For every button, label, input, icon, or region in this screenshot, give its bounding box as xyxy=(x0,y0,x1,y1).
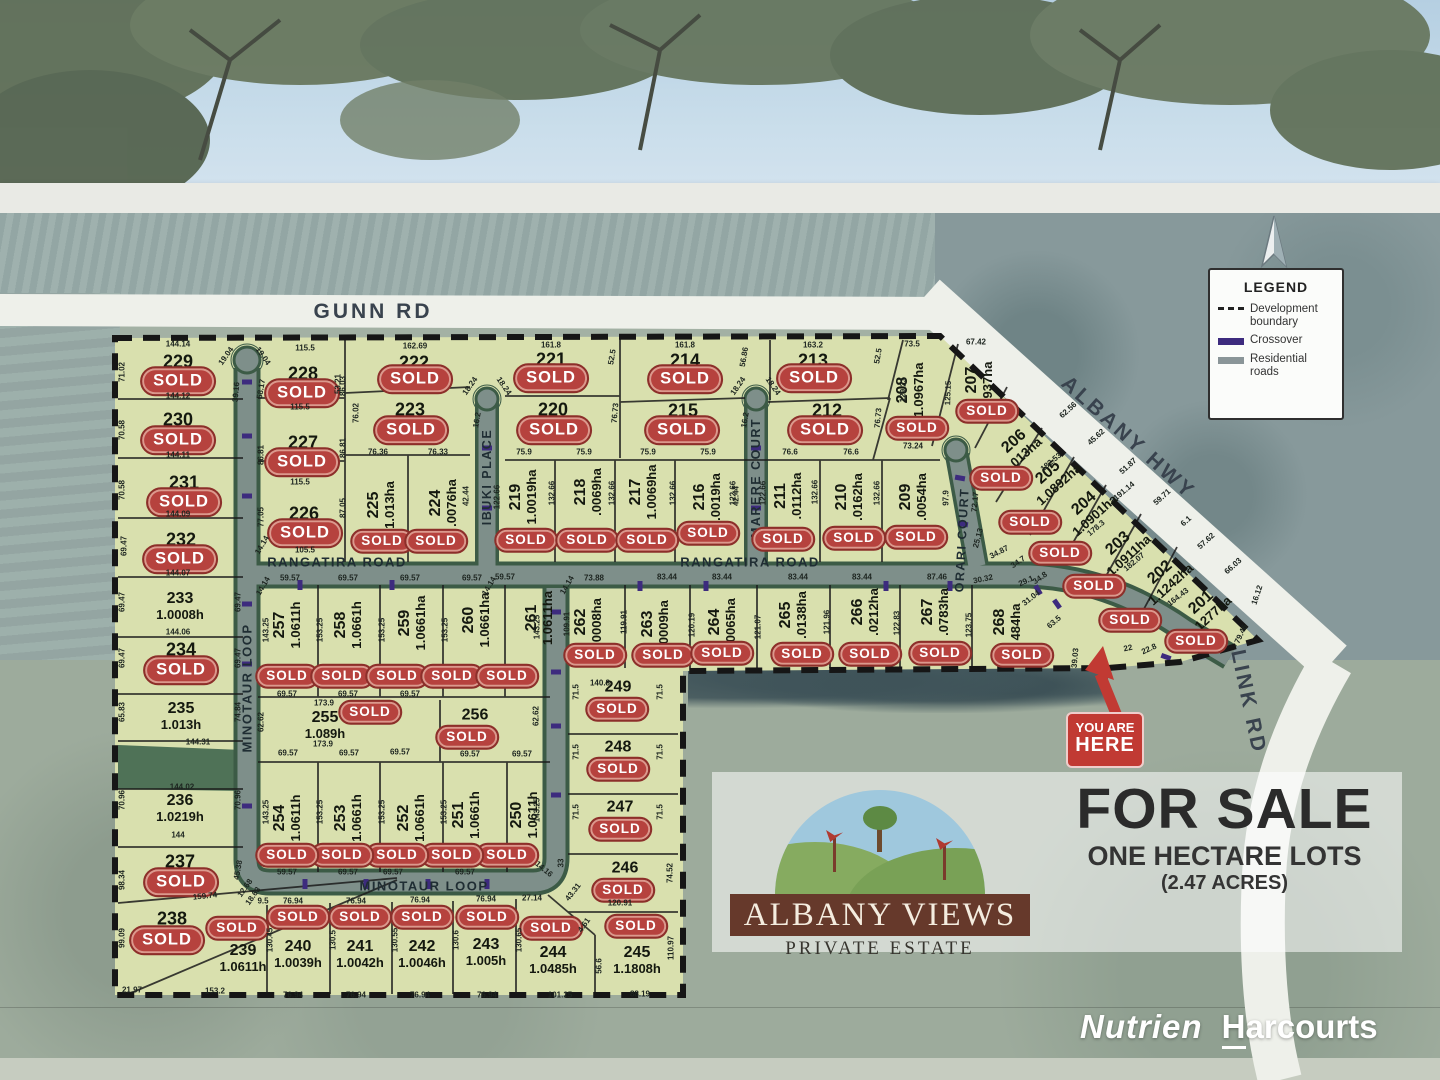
dimension-label: 76.33 xyxy=(428,448,448,457)
dimension-label: 121.96 xyxy=(823,610,832,634)
lot-number: 256 xyxy=(462,708,489,725)
lot-number: 240 xyxy=(274,939,322,956)
lot-label: 2431.005h xyxy=(466,937,506,967)
dimension-label: 77.05 xyxy=(257,507,266,527)
dimension-label: 115.5 xyxy=(290,478,310,487)
road-label-rangatira-west: RANGATIRA ROAD xyxy=(267,555,406,570)
dimension-label: 83.44 xyxy=(788,573,808,582)
sold-badge: SOLD xyxy=(955,399,1019,424)
dimension-label: 71.5 xyxy=(572,804,581,820)
lot-label: 2591.0661ha xyxy=(397,596,427,651)
lot-number: 251 xyxy=(451,791,468,839)
lot-area: 1.005h xyxy=(466,954,506,968)
legend-item: Crossover xyxy=(1218,334,1334,347)
logo-windmill-icon xyxy=(943,846,946,880)
dimension-label: 69.47 xyxy=(234,592,243,612)
dimension-label: 140.8 xyxy=(590,679,610,688)
dimension-label: 98.34 xyxy=(118,870,127,890)
dimension-label: 153.25 xyxy=(440,800,449,824)
lot-number: 266 xyxy=(850,588,867,636)
lot-label: 216.0019ha xyxy=(692,473,722,521)
dimension-label: 88.19 xyxy=(630,990,650,999)
lot-label: 256 xyxy=(462,708,489,725)
lot-number: 248 xyxy=(605,740,632,757)
lot-number: 236 xyxy=(156,793,204,810)
lot-label: 246 xyxy=(612,861,639,878)
road-label-rangatira-east: RANGATIRA ROAD xyxy=(680,555,819,570)
you-are-here-line2: HERE xyxy=(1068,735,1142,756)
lot-label: 266.0212ha xyxy=(850,588,880,636)
dimension-label: 144.31 xyxy=(186,738,210,747)
sold-badge: SOLD xyxy=(676,521,740,546)
dimension-label: 74.84 xyxy=(234,702,243,722)
lot-area: 1.0039h xyxy=(274,956,322,970)
sold-badge: SOLD xyxy=(420,664,484,689)
lot-label: 2521.0661h xyxy=(396,794,426,842)
dimension-label: 9.5 xyxy=(257,897,268,906)
dimension-label: 76.94 xyxy=(346,991,366,1000)
dimension-label: 65.83 xyxy=(118,702,127,722)
dimension-label: 69.57 xyxy=(512,750,532,759)
legend-item: Development boundary xyxy=(1218,303,1334,329)
dimension-label: 125.15 xyxy=(943,381,953,406)
dimension-label: 153.2 xyxy=(205,987,225,996)
lot-area: .0162ha xyxy=(851,473,865,521)
sold-badge: SOLD xyxy=(513,363,589,393)
sold-badge: SOLD xyxy=(267,518,343,548)
sold-badge: SOLD xyxy=(310,664,374,689)
dimension-label: 144.02 xyxy=(170,783,194,792)
lot-area: 1.0661h xyxy=(350,794,364,842)
dimension-label: 76.94 xyxy=(410,896,430,905)
lot-number: 209 xyxy=(898,473,915,521)
lot-number: 217 xyxy=(628,465,645,520)
dimension-label: 130.45 xyxy=(266,928,275,952)
dimension-label: 115.5 xyxy=(295,344,315,353)
sold-badge: SOLD xyxy=(365,664,429,689)
dimension-label: 59.57 xyxy=(495,573,515,582)
dimension-label: 130.5 xyxy=(329,930,338,950)
sold-badge: SOLD xyxy=(494,528,558,553)
dimension-label: 71.5 xyxy=(656,684,665,700)
lot-label: 2601.0661ha xyxy=(461,593,491,648)
sold-badge: SOLD xyxy=(519,916,583,941)
lot-area: 1.0046h xyxy=(398,956,446,970)
dimension-label: 75.9 xyxy=(576,448,592,457)
lot-number: 259 xyxy=(397,596,414,651)
lot-area: .0065ha xyxy=(724,598,738,646)
sold-badge: SOLD xyxy=(998,510,1062,535)
lot-label: 268484ha xyxy=(992,604,1022,641)
dimension-label: 86.81 xyxy=(339,438,348,458)
sold-badge: SOLD xyxy=(420,843,484,868)
lot-area: 1.0611h xyxy=(289,602,303,649)
dimension-label: 69.47 xyxy=(118,592,127,612)
lot-number: 257 xyxy=(272,602,289,649)
dimension-label: 69.47 xyxy=(120,536,129,556)
dimension-label: 69.57 xyxy=(400,574,420,583)
dimension-label: 130.6 xyxy=(452,930,461,950)
sold-badge: SOLD xyxy=(365,843,429,868)
lot-area: 1.0611h xyxy=(220,960,267,974)
dimension-label: 70.58 xyxy=(118,420,127,440)
dimension-label: 109.91 xyxy=(563,612,572,636)
dimension-label: 144.11 xyxy=(166,451,190,460)
dimension-label: 144.09 xyxy=(166,510,190,519)
lot-area: 1.0661h xyxy=(350,601,364,649)
lot-label: 2191.0019ha xyxy=(508,470,538,525)
lot-area: .0076ha xyxy=(445,479,459,527)
lot-area: 1.0069ha xyxy=(645,465,659,520)
lot-area: .0019ha xyxy=(709,473,723,521)
dimension-label: 76.36 xyxy=(368,448,388,457)
lot-area: 1.0219h xyxy=(156,810,204,824)
lot-label: 209.0054ha xyxy=(898,473,928,521)
dimension-label: 69.57 xyxy=(338,868,358,877)
dimension-label: 76.94 xyxy=(346,897,366,906)
sold-badge: SOLD xyxy=(475,664,539,689)
lot-label: 265.0138ha xyxy=(778,591,808,639)
dimension-label: 56.6 xyxy=(595,958,604,974)
dimension-label: 132.66 xyxy=(873,481,882,505)
lot-label: 211.0112ha xyxy=(773,473,803,520)
dimension-label: 76.73 xyxy=(610,403,621,424)
lot-number: 239 xyxy=(220,943,267,960)
agency-harcourts-rest: arcourts xyxy=(1246,1008,1378,1045)
lot-label: 2391.0611h xyxy=(220,943,267,973)
lot-area: 1.0019ha xyxy=(525,470,539,525)
lot-number: 218 xyxy=(573,468,590,516)
lot-number: 207 xyxy=(964,362,981,399)
estate-name: ALBANY VIEWS xyxy=(730,894,1030,936)
sold-badge: SOLD xyxy=(585,697,649,722)
dimension-label: 72.17 xyxy=(970,492,981,513)
lot-area: .0212ha xyxy=(867,588,881,636)
dimension-label: 39.03 xyxy=(1070,648,1081,669)
dimension-label: 144.14 xyxy=(166,340,190,349)
dimension-label: 161.8 xyxy=(541,341,561,350)
sold-badge: SOLD xyxy=(647,364,723,394)
sold-badge: SOLD xyxy=(516,415,592,445)
lot-number: 263 xyxy=(640,600,657,648)
legend-item: Residential roads xyxy=(1218,353,1334,379)
lot-label: 267.0783ha xyxy=(920,588,950,636)
lot-area: 1.0611ha xyxy=(541,591,555,645)
lot-area: 1.0485h xyxy=(529,962,577,976)
road-label-minotaur-horizontal: MINOTAUR LOOP xyxy=(359,879,488,894)
dimension-label: 76.94 xyxy=(283,991,303,1000)
north-arrow-icon xyxy=(1256,214,1292,270)
lot-label: 2401.0039h xyxy=(274,939,322,969)
dimension-label: 76.94 xyxy=(283,897,303,906)
sold-badge: SOLD xyxy=(328,905,392,930)
dimension-label: 27.14 xyxy=(522,894,542,903)
gunn-road-band xyxy=(0,294,952,330)
lot-number: 253 xyxy=(333,794,350,842)
lot-label: 207937ha xyxy=(964,362,994,399)
dimension-label: 69.57 xyxy=(339,749,359,758)
dimension-label: 123.75 xyxy=(965,613,974,637)
road-label-minotaur-vertical: MINOTAUR LOOP xyxy=(240,623,255,752)
lot-area: .0138ha xyxy=(795,591,809,639)
lot-number: 241 xyxy=(336,939,384,956)
lot-area: 1.0661ha xyxy=(478,593,492,648)
lot-number: 264 xyxy=(707,598,724,646)
lot-label: 263.0009ha xyxy=(640,600,670,648)
dimension-label: 153.25 xyxy=(441,618,450,642)
sold-badge: SOLD xyxy=(751,527,815,552)
dimension-label: 69.47 xyxy=(118,648,127,668)
lot-number: 254 xyxy=(272,795,289,842)
road-label-marere: MARERE COURT xyxy=(749,418,763,538)
sold-badge: SOLD xyxy=(555,528,619,553)
dimension-label: 122.66 xyxy=(759,481,768,505)
lot-label: 262.0008ha xyxy=(573,598,603,646)
dimension-label: 62.62 xyxy=(532,706,541,726)
lot-number: 246 xyxy=(612,861,639,878)
lot-area: .0783ha xyxy=(937,588,951,636)
lot-area: 1.0008h xyxy=(156,608,204,622)
lot-number: 224 xyxy=(428,479,445,527)
sold-badge: SOLD xyxy=(129,925,205,955)
dimension-label: 73.88 xyxy=(584,574,604,583)
dimension-label: 75.9 xyxy=(516,448,532,457)
dimension-label: 119.91 xyxy=(620,610,629,634)
dimension-label: 122.66 xyxy=(729,481,738,505)
dimension-label: 97.9 xyxy=(942,490,951,506)
logo-sky-icon xyxy=(775,790,985,895)
dimension-label: 69.57 xyxy=(400,690,420,699)
lot-label: 210.0162ha xyxy=(834,473,864,521)
dimension-label: 143.25 xyxy=(533,798,542,822)
dimension-label: 163.2 xyxy=(803,341,823,350)
dimension-label: 153.25 xyxy=(316,618,325,642)
dimension-label: 59.57 xyxy=(280,574,300,583)
lot-area: .0009ha xyxy=(657,600,671,648)
estate-sign-photo: GUNN RD ALBANY HWY LINK RD RANGATIRA ROA… xyxy=(0,0,1440,1080)
dimension-label: 71.02 xyxy=(118,362,127,382)
for-sale-panel: ALBANY VIEWS PRIVATE ESTATE FOR SALE ONE… xyxy=(712,772,1402,952)
sold-badge: SOLD xyxy=(770,642,834,667)
dimension-label: 70.96 xyxy=(118,790,127,810)
lot-area: 1.0661ha xyxy=(414,596,428,651)
sold-badge: SOLD xyxy=(435,725,499,750)
road-label-ibuki: IBUKI PLACE xyxy=(480,429,494,525)
sold-badge: SOLD xyxy=(475,843,539,868)
lot-number: 244 xyxy=(529,945,577,962)
dimension-label: 76.6 xyxy=(843,448,859,457)
dimension-label: 87.46 xyxy=(927,573,947,582)
sold-badge: SOLD xyxy=(205,916,269,941)
sold-badge: SOLD xyxy=(563,643,627,668)
dimension-label: 132.66 xyxy=(811,480,820,504)
dimension-label: 143.25 xyxy=(262,618,271,642)
dimension-label: 87.05 xyxy=(339,498,348,518)
lot-label: 247 xyxy=(607,800,634,817)
dimension-label: 69.47 xyxy=(234,648,243,668)
sold-badge: SOLD xyxy=(586,757,650,782)
legend-gray-swatch-icon xyxy=(1218,357,1244,364)
legend-title: LEGEND xyxy=(1218,279,1334,295)
dimension-label: 144 xyxy=(171,831,184,840)
lot-label: 2451.1808h xyxy=(613,945,661,975)
dimension-label: 132.66 xyxy=(669,481,678,505)
dimension-label: 69.57 xyxy=(462,574,482,583)
sold-badge: SOLD xyxy=(310,843,374,868)
dimension-label: 74.52 xyxy=(666,863,675,883)
lot-area: 1.0967ha xyxy=(912,363,926,418)
dimension-label: 132.66 xyxy=(548,481,557,505)
lot-label: 2581.0661h xyxy=(333,601,363,649)
dimension-label: 153.25 xyxy=(378,618,387,642)
lot-number: 267 xyxy=(920,588,937,636)
dimension-label: 122.66 xyxy=(493,485,502,509)
legend-item-label: Development boundary xyxy=(1250,303,1334,329)
dimension-label: 70.58 xyxy=(118,480,127,500)
dimension-label: 153.25 xyxy=(316,800,325,824)
agency-nutrien: Nutrien xyxy=(1080,1008,1203,1045)
dimension-label: 99.09 xyxy=(118,928,127,948)
lot-label: 2511.0661h xyxy=(451,791,481,839)
lot-label: 2441.0485h xyxy=(529,945,577,975)
lot-area: 1.013ha xyxy=(383,481,397,529)
dimension-label: 153.25 xyxy=(378,800,387,824)
dimension-label: 76.94 xyxy=(476,895,496,904)
dimension-label: 73.5 xyxy=(904,340,920,349)
lot-label: 2351.013h xyxy=(161,701,201,731)
dimension-label: 21.97 xyxy=(122,986,142,995)
agency-harcourts-h: H xyxy=(1222,1008,1246,1049)
lot-number: 252 xyxy=(396,794,413,842)
sold-badge: SOLD xyxy=(1062,574,1126,599)
lot-number: 235 xyxy=(161,701,201,718)
you-are-here-line1: YOU ARE xyxy=(1068,721,1142,735)
lot-area: 1.0042h xyxy=(336,956,384,970)
for-sale-title: FOR SALE xyxy=(1052,780,1397,840)
sale-text: FOR SALE ONE HECTARE LOTS (2.47 ACRES) xyxy=(1052,780,1397,895)
lot-area: 1.0661h xyxy=(468,791,482,839)
sold-badge: SOLD xyxy=(1164,629,1228,654)
dimension-label: 39.16 xyxy=(231,382,242,403)
legend-dashed-swatch-icon xyxy=(1218,307,1244,310)
dimension-label: 120.19 xyxy=(688,613,697,637)
sold-badge: SOLD xyxy=(644,415,720,445)
lot-number: 233 xyxy=(156,591,204,608)
lot-area: 1.0661h xyxy=(413,794,427,842)
lot-number: 247 xyxy=(607,800,634,817)
lot-label: 2361.0219h xyxy=(156,793,204,823)
legend-item-label: Crossover xyxy=(1250,334,1302,347)
sold-badge: SOLD xyxy=(255,664,319,689)
lot-area: 1.013h xyxy=(161,718,201,732)
lot-label: 2411.0042h xyxy=(336,939,384,969)
sold-badge: SOLD xyxy=(908,641,972,666)
dimension-label: 76.6 xyxy=(782,448,798,457)
dimension-label: 71.5 xyxy=(572,744,581,760)
dimension-label: 110.97 xyxy=(667,936,676,960)
lot-number: 210 xyxy=(834,473,851,521)
lot-label: 224.0076ha xyxy=(428,479,458,527)
sold-badge: SOLD xyxy=(1098,608,1162,633)
lot-number: 265 xyxy=(778,591,795,639)
dimension-label: 62.62 xyxy=(257,712,266,732)
sold-badge: SOLD xyxy=(264,447,340,477)
dimension-label: 130.65 xyxy=(515,928,524,952)
sold-badge: SOLD xyxy=(884,525,948,550)
lot-label: 2531.0661h xyxy=(333,794,363,842)
dimension-label: 71.5 xyxy=(656,804,665,820)
dimension-label: 101.25 xyxy=(548,991,572,1000)
dimension-label: 83.44 xyxy=(712,573,732,582)
albany-views-logo: ALBANY VIEWS PRIVATE ESTATE xyxy=(730,782,1030,942)
sold-badge: SOLD xyxy=(1028,541,1092,566)
sold-badge: SOLD xyxy=(255,843,319,868)
dimension-label: 173.9 xyxy=(314,699,334,708)
lot-area: .0069ha xyxy=(590,468,604,516)
lot-label: 2331.0008h xyxy=(156,591,204,621)
you-are-here-badge: YOU ARE HERE xyxy=(1066,712,1144,768)
lot-number: 268 xyxy=(992,604,1009,641)
sold-badge: SOLD xyxy=(404,529,468,554)
sold-badge: SOLD xyxy=(822,526,886,551)
dimension-label: 144.06 xyxy=(166,628,190,637)
lot-label: 2541.0611h xyxy=(272,795,302,842)
dimension-label: 161.8 xyxy=(675,341,695,350)
sold-badge: SOLD xyxy=(885,416,949,441)
dimension-label: 86.81 xyxy=(257,445,266,465)
dimension-label: 132.66 xyxy=(608,481,617,505)
lot-label: 2251.013ha xyxy=(366,481,396,529)
dimension-label: 69.57 xyxy=(338,690,358,699)
lot-area: .0008ha xyxy=(590,598,604,646)
logo-tree-crown-icon xyxy=(863,806,897,830)
logo-windmill-icon xyxy=(833,838,836,872)
sold-badge: SOLD xyxy=(787,415,863,445)
lot-number: 243 xyxy=(466,937,506,954)
sold-badge: SOLD xyxy=(690,641,754,666)
lot-label: 2421.0046h xyxy=(398,939,446,969)
dimension-label: 69.57 xyxy=(383,868,403,877)
lot-number: 258 xyxy=(333,601,350,649)
lot-number: 216 xyxy=(692,473,709,521)
dimension-label: 83.44 xyxy=(852,573,872,582)
agency-logo: Nutrien Harcourts xyxy=(1080,1008,1420,1046)
lot-number: 260 xyxy=(461,593,478,648)
lot-number: 219 xyxy=(508,470,525,525)
sold-badge: SOLD xyxy=(631,643,695,668)
lot-label: 218.0069ha xyxy=(573,468,603,516)
dimension-label: 130.55 xyxy=(391,928,400,952)
lot-number: 242 xyxy=(398,939,446,956)
sold-badge: SOLD xyxy=(604,914,668,939)
dimension-label: 69.57 xyxy=(277,690,297,699)
lot-area: 1.1808h xyxy=(613,962,661,976)
legend-item-label: Residential roads xyxy=(1250,353,1334,379)
lot-area: 1.0611h xyxy=(289,795,303,842)
sold-badge: SOLD xyxy=(390,905,454,930)
legend-box: LEGEND Development boundaryCrossoverResi… xyxy=(1208,268,1344,420)
dimension-label: 121.07 xyxy=(754,615,763,639)
agency-harcourts: Harcourts xyxy=(1222,1008,1378,1045)
sold-badge: SOLD xyxy=(990,643,1054,668)
dimension-label: 115.5 xyxy=(290,403,310,412)
lot-area: 1.089h xyxy=(305,727,345,741)
dimension-label: 129.23 xyxy=(898,378,908,403)
dimension-label: 76.94 xyxy=(477,991,497,1000)
lot-number: 211 xyxy=(773,473,790,520)
legend-items: Development boundaryCrossoverResidential… xyxy=(1218,303,1334,379)
sold-badge: SOLD xyxy=(143,655,219,685)
